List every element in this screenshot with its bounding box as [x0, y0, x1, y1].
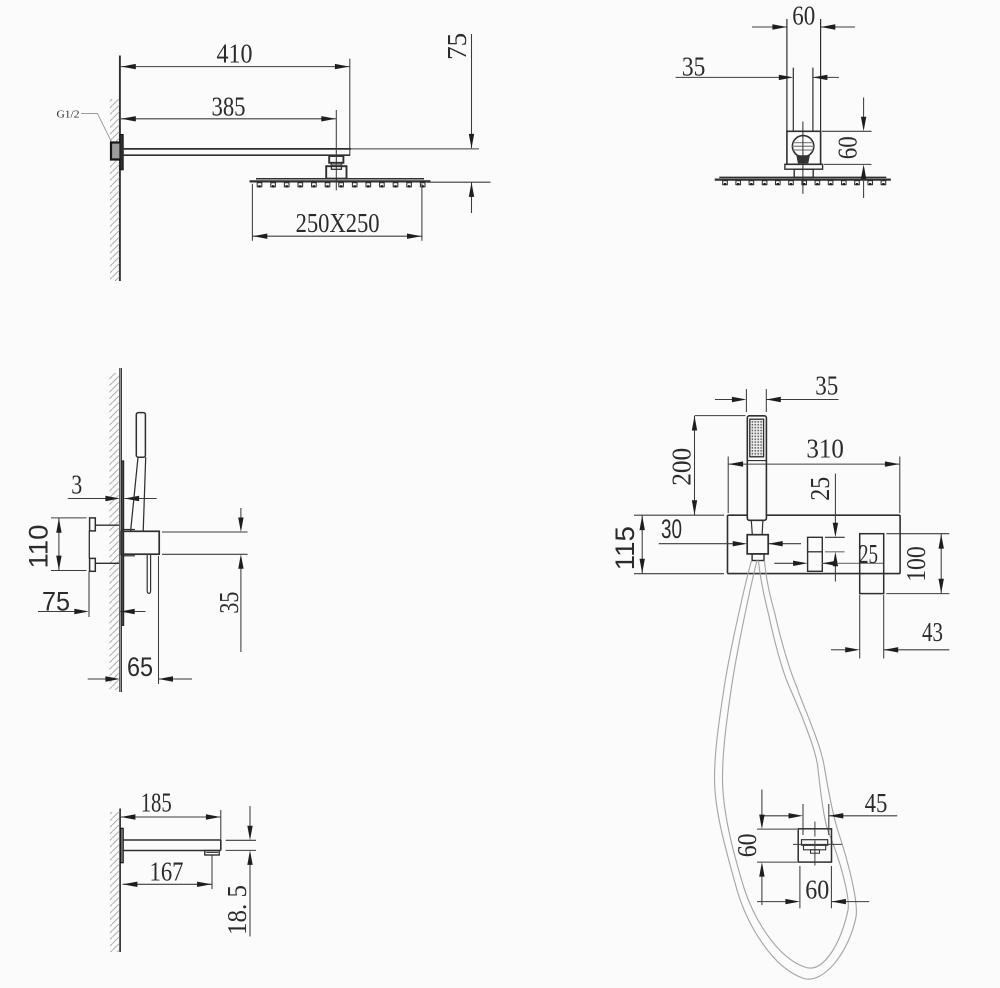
svg-text:200: 200 [667, 448, 697, 486]
svg-text:30: 30 [661, 514, 682, 544]
svg-text:60: 60 [833, 136, 863, 159]
svg-text:167: 167 [150, 857, 184, 887]
svg-text:75: 75 [42, 587, 70, 617]
svg-text:35: 35 [815, 371, 838, 401]
svg-text:G1/2: G1/2 [57, 109, 80, 121]
svg-text:385: 385 [212, 92, 246, 122]
svg-text:60: 60 [792, 0, 815, 30]
svg-text:410: 410 [217, 39, 253, 69]
svg-text:45: 45 [865, 788, 888, 818]
svg-text:310: 310 [806, 433, 844, 463]
svg-text:115: 115 [610, 526, 640, 570]
svg-text:18. 5: 18. 5 [222, 885, 252, 935]
svg-text:3: 3 [71, 469, 82, 499]
svg-text:185: 185 [141, 788, 172, 818]
svg-text:25: 25 [805, 477, 835, 501]
svg-text:60: 60 [805, 874, 829, 904]
svg-text:60: 60 [732, 834, 762, 858]
svg-text:65: 65 [127, 652, 153, 682]
svg-text:25: 25 [859, 539, 878, 569]
svg-text:35: 35 [214, 592, 244, 614]
svg-text:35: 35 [682, 52, 705, 82]
svg-text:43: 43 [922, 617, 943, 647]
svg-text:100: 100 [901, 546, 931, 582]
svg-text:110: 110 [24, 525, 54, 569]
svg-text:250X250: 250X250 [296, 208, 380, 238]
svg-text:75: 75 [442, 33, 472, 60]
